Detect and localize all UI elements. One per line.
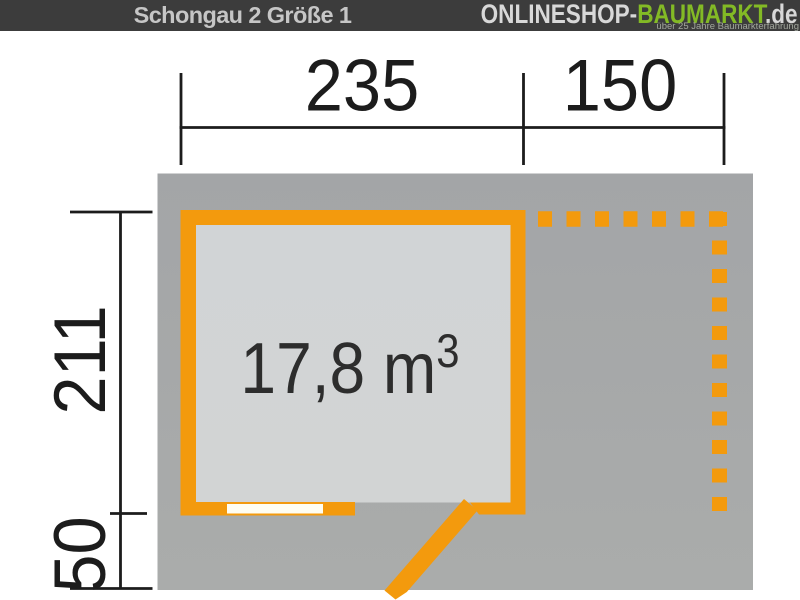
svg-text:235: 235 <box>305 46 419 127</box>
svg-text:50: 50 <box>40 516 121 592</box>
svg-text:17,8 m3: 17,8 m3 <box>240 326 459 409</box>
svg-text:150: 150 <box>563 46 677 127</box>
svg-text:211: 211 <box>40 305 121 414</box>
